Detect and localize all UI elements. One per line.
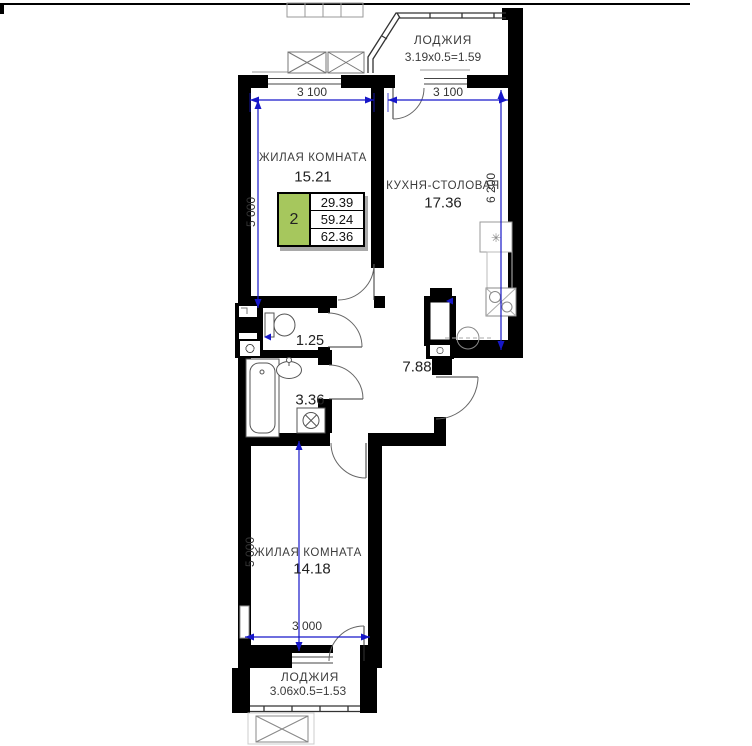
wall-segment — [360, 645, 382, 668]
living-bottom-door-arc — [331, 443, 366, 478]
dim-top-left-text: 3 100 — [297, 85, 327, 99]
bath-sink-tap-dot — [287, 358, 292, 363]
rooms-count-cell: 2 — [279, 194, 311, 245]
loggia-bottom-door-arc — [329, 626, 364, 661]
wall-segment — [374, 296, 385, 308]
wall-segment — [318, 358, 332, 365]
border-tick — [0, 5, 4, 14]
wall-segment — [238, 645, 292, 668]
wall-segment — [232, 668, 250, 713]
loggia-top-label: ЛОДЖИЯ — [414, 33, 472, 47]
toilet-bowl-icon — [274, 314, 295, 336]
wc-area: 1.25 — [296, 333, 324, 349]
kitchen-sink-bowl — [502, 302, 512, 312]
floor-area-value: 59.24 — [311, 210, 363, 227]
living-bottom-window — [292, 653, 333, 668]
loggia-bottom-dims: 3.06x0.5=1.53 — [270, 684, 346, 698]
toilet-tank-icon — [265, 313, 274, 337]
dim-left-top-text: 5 000 — [244, 197, 258, 227]
wall-segment — [385, 75, 395, 88]
dim-bottom-text: 3 000 — [292, 619, 322, 633]
wall-segment — [360, 668, 377, 713]
living-top-label: ЖИЛАЯ КОМНАТА — [259, 152, 367, 164]
living-top-area: 15.21 — [294, 169, 332, 186]
left-wall-niche — [240, 606, 249, 638]
wc-door-arc — [328, 313, 362, 347]
hall-area: 7.88 — [402, 359, 431, 376]
entrance-door-arc — [436, 377, 478, 419]
loggia-bottom-label: ЛОДЖИЯ — [281, 670, 339, 684]
floor-plan-drawing: ✳ — [0, 0, 752, 746]
vent-box-interior — [430, 345, 450, 356]
dim-kitchen-text: 6 200 — [484, 173, 498, 203]
area-legend: 2 29.39 59.24 62.36 — [277, 192, 365, 247]
bathroom-area: 3.36 — [295, 392, 324, 409]
page-border — [0, 3, 690, 14]
wc-slit-inset — [239, 333, 257, 339]
glazing-tick — [397, 13, 400, 18]
wall-segment — [432, 358, 452, 375]
neighbour-loggia-outline — [287, 3, 363, 17]
total-area-value: 62.36 — [311, 228, 363, 245]
living-area-value: 29.39 — [311, 194, 363, 210]
bathroom-door-arc — [329, 365, 363, 399]
stove-icon: ✳ — [491, 231, 501, 245]
dim-arrow — [498, 90, 505, 99]
dim-top-right-text: 3 100 — [433, 85, 463, 99]
kitchen-label: КУХНЯ-СТОЛОВАЯ — [386, 180, 500, 192]
floor-plan: ✳ — [0, 0, 752, 746]
wall-segment — [371, 75, 384, 268]
wc-box-inset — [240, 341, 260, 356]
living-bottom-area: 14.18 — [293, 561, 331, 578]
area-values: 29.39 59.24 62.36 — [311, 194, 363, 245]
kitchen-area: 17.36 — [424, 195, 462, 212]
living-bottom-label: ЖИЛАЯ КОМНАТА — [254, 547, 362, 559]
wall-segment — [467, 75, 510, 88]
wall-segment — [434, 417, 446, 433]
living-top-door-arc — [338, 264, 374, 300]
wall-segment — [238, 75, 251, 303]
bathtub-drain — [260, 370, 264, 374]
kitchen-sink-bowl — [490, 292, 501, 303]
wall-segment — [368, 446, 382, 668]
wall-segment — [238, 75, 268, 88]
wall-segment — [368, 433, 446, 446]
vent-shaft-interior — [431, 303, 449, 339]
loggia-top-dims: 3.19x0.5=1.59 — [405, 50, 481, 64]
kitchen-balcony-door-arc — [393, 88, 424, 119]
dim-left-bottom-text: 5 000 — [243, 537, 257, 567]
wall-segment — [318, 296, 330, 313]
